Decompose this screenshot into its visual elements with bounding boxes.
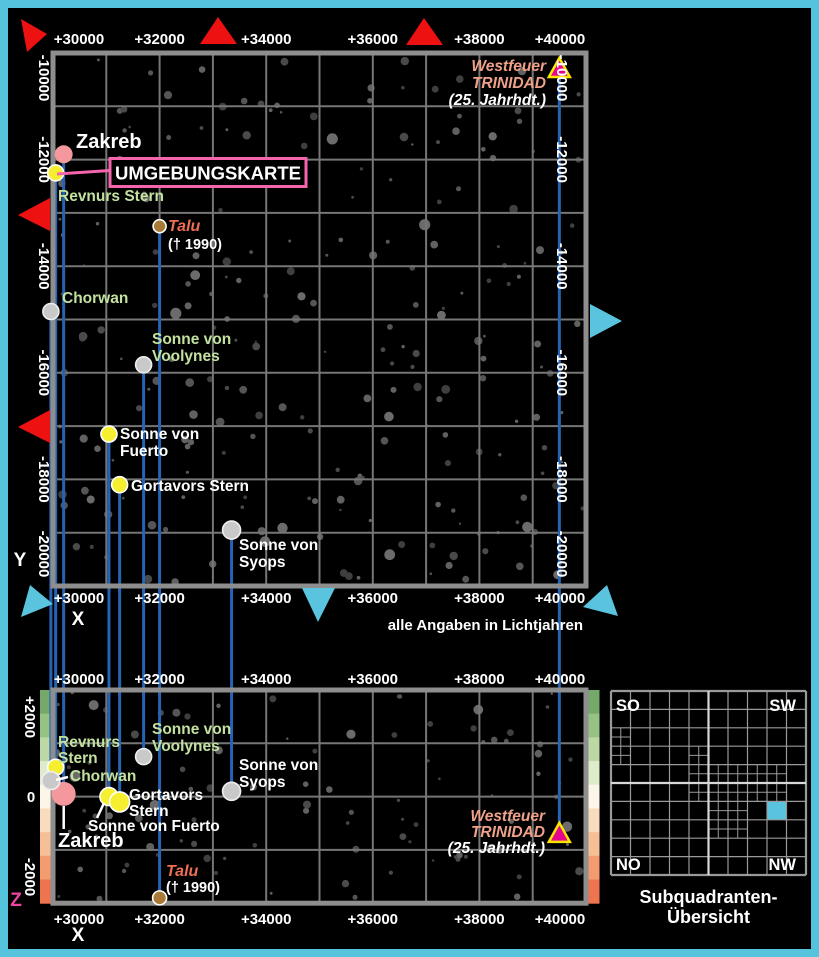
y-tick-left: -14000 [35,243,52,290]
x-tick-top-map-bottom: +32000 [134,590,184,607]
background-star-dot [536,246,544,254]
star-chorwan-bottom-label: Chorwan [70,768,136,785]
background-star-dot [297,292,305,300]
background-star-dot [163,527,168,532]
background-star-dot [166,135,171,140]
y-tick-right: -16000 [553,349,570,396]
background-star-dot [381,347,386,352]
background-star-dot [125,863,130,868]
background-star-dot [364,395,372,403]
background-star-dot [436,396,442,402]
background-star-dot [326,786,333,793]
background-star-dot [480,375,486,381]
star-sonne-von-syops-top-label: Sonne von [239,537,318,554]
background-star-dot [349,810,354,815]
background-star-dot [427,721,433,727]
background-star-dot [59,218,62,221]
background-star-dot [391,387,397,393]
background-star-dot [542,445,547,450]
background-star-dot [357,576,361,580]
x-tick-top: +38000 [454,31,504,48]
background-star-dot [384,412,394,422]
map-title: UMGEBUNGSKARTE [115,163,301,184]
background-star-dot [413,302,419,308]
background-star-dot [432,86,439,93]
background-star-dot [189,410,198,419]
star-westfeuer-trinidad-bottom-label: TRINIDAD [471,824,545,841]
star-gortavors-stern-bottom-marker [110,792,130,812]
background-star-dot [481,147,486,152]
background-star-dot [136,405,142,411]
background-star-dot [73,543,80,550]
background-star-dot [243,495,247,499]
background-star-dot [451,508,455,512]
background-star-dot [77,867,83,873]
star-revnurs-stern-bottom-label: Revnurs [58,734,120,751]
background-star-dot [346,730,355,739]
background-star-dot [81,487,89,495]
background-star-dot [401,57,409,65]
background-star-dot [381,437,389,445]
x-tick-top-map-bottom: +34000 [241,590,291,607]
background-star-dot [441,385,450,394]
background-star-dot [80,435,88,443]
star-sonne-von-fuerto-top-label: Fuerto [120,443,168,460]
x-tick-bottom-map-top: +36000 [348,671,398,688]
background-star-dot [517,119,522,124]
background-star-dot [79,332,88,341]
background-star-dot [258,527,266,535]
background-star-dot [184,713,190,719]
background-star-dot [191,841,197,847]
background-star-dot [354,477,363,486]
background-star-dot [384,549,395,560]
background-star-dot [517,874,522,879]
x-tick-bottom-map-top: +38000 [454,671,504,688]
x-tick-bottom-map-bottom: +32000 [134,911,184,928]
background-star-dot [546,705,550,709]
background-star-dot [491,737,498,744]
background-star-dot [443,432,449,438]
star-map-page: UMGEBUNGSKARTEZakrebZakrebRevnurs SternR… [0,0,819,957]
background-star-dot [452,127,460,135]
background-star-dot [342,880,349,887]
background-star-dot [536,772,540,776]
background-star-dot [180,767,186,773]
background-star-dot [533,414,540,421]
y-tick-right: -20000 [553,531,570,578]
background-star-dot [481,356,487,362]
star-talu-top-label: Talu [168,218,201,235]
background-star-dot [147,388,150,391]
background-star-dot [303,781,309,787]
background-star-dot [507,729,514,736]
star-sonne-von-syops-bottom-marker [223,782,241,800]
z-tick-left: 0 [27,789,35,806]
star-sonne-von-fuerto-bottom-label: Sonne von Fuerto [88,818,220,835]
x-tick-bottom-map-top: +32000 [134,671,184,688]
background-star-dot [303,808,309,814]
background-star-dot [172,709,180,717]
y-tick-right: -12000 [553,136,570,183]
y-tick-right: -10000 [553,55,570,102]
overview-corner-no: NO [616,856,641,874]
x-tick-bottom-map-top: +40000 [535,671,585,688]
background-star-dot [398,541,405,548]
background-star-dot [148,521,157,530]
y-tick-right: -14000 [553,243,570,290]
background-star-dot [222,451,226,455]
background-star-dot [94,445,101,452]
background-star-dot [570,223,575,228]
background-star-dot [353,895,358,900]
x-tick-bottom-map-bottom: +38000 [454,911,504,928]
background-star-dot [516,563,524,571]
background-star-dot [432,859,435,862]
background-star-dot [474,337,482,345]
star-sonne-von-fuerto-top-marker [101,426,117,442]
background-star-dot [401,818,404,821]
background-star-dot [534,341,541,348]
x-tick-bottom-map-bottom: +34000 [241,911,291,928]
background-star-dot [438,778,441,781]
background-star-dot [97,59,100,62]
star-chorwan-top-marker [43,304,59,320]
x-tick-top: +32000 [134,31,184,48]
overview-current-sector-cell [767,801,787,819]
background-star-dot [307,497,311,501]
z-axis-letter: Z [10,890,22,911]
background-star-dot [351,196,354,199]
z-tick-left: +2000 [21,696,38,738]
background-star-dot [249,250,253,254]
background-star-dot [312,498,318,504]
background-star-dot [185,378,194,387]
star-westfeuer-trinidad-top-label: Westfeuer [471,58,547,75]
background-star-dot [131,731,139,739]
background-star-dot [517,275,521,279]
background-star-dot [128,126,131,129]
background-star-dot [540,366,543,369]
background-star-dot [337,496,345,504]
star-sonne-von-voolynes-bottom-label: Voolynes [152,738,220,755]
background-star-dot [241,505,245,509]
background-star-dot [392,732,398,738]
overview-caption-line1: Subquadranten- [640,887,778,907]
star-chorwan-top-label: Chorwan [62,290,128,307]
y-tick-left: -10000 [35,55,52,102]
background-star-dot [148,70,153,75]
star-sonne-von-voolynes-bottom-label: Sonne von [152,721,231,738]
star-revnurs-stern-bottom-label: Stern [58,750,98,767]
star-sonne-von-syops-bottom-label: Syops [239,774,286,791]
background-star-dot [324,351,326,353]
background-star-dot [339,238,344,243]
background-star-dot [456,75,464,83]
background-star-dot [410,365,414,369]
background-star-dot [401,86,405,90]
background-star-dot [390,361,394,365]
background-star-dot [574,321,580,327]
background-star-dot [345,572,353,580]
background-star-dot [200,126,204,130]
background-star-dot [436,140,440,144]
x-tick-top-map-bottom: +30000 [54,590,104,607]
background-star-dot [445,460,451,466]
x-tick-bottom-map-top: +30000 [54,671,104,688]
background-star-dot [277,523,287,533]
background-star-dot [389,178,392,181]
y-tick-left: -18000 [35,456,52,503]
star-sonne-von-syops-bottom-label: Sonne von [239,757,318,774]
background-star-dot [401,345,404,348]
units-note: alle Angaben in Lichtjahren [388,617,583,634]
background-star-dot [521,494,528,501]
star-revnurs-stern-top-label: Revnurs Stern [58,188,164,205]
background-star-dot [96,222,99,225]
background-star-dot [398,694,402,698]
background-star-dot [185,302,192,309]
background-star-dot [288,240,291,243]
background-star-dot [112,459,115,462]
y-axis-letter: Y [14,550,27,571]
star-gortavors-stern-top-marker [112,477,128,493]
background-star-dot [537,741,543,747]
background-star-dot [461,292,464,295]
star-zakreb-top-marker [55,145,73,163]
background-star-dot [400,133,409,142]
background-star-dot [369,519,372,522]
background-star-dot [122,869,126,873]
overview-caption-line2: Übersicht [667,907,750,927]
background-star-dot [152,303,157,308]
background-star-dot [413,383,421,391]
star-westfeuer-trinidad-bottom-label: (25. Jahrhdt.) [448,840,545,857]
background-star-dot [89,700,99,710]
x-tick-bottom-map-bottom: +36000 [348,911,398,928]
y-tick-right: -18000 [553,456,570,503]
background-star-dot [462,576,469,583]
background-star-dot [524,262,527,265]
background-star-dot [437,200,442,205]
x-tick-top: +34000 [241,31,291,48]
background-star-dot [216,418,225,427]
background-star-dot [389,871,393,875]
background-star-dot [87,496,95,504]
background-star-dot [566,843,569,846]
background-star-dot [487,279,492,284]
background-star-dot [483,335,486,338]
background-star-dot [446,562,453,569]
background-star-dot [514,894,520,900]
background-star-dot [204,855,211,862]
background-star-dot [269,695,276,702]
star-map-scene: UMGEBUNGSKARTEZakrebZakrebRevnurs SternR… [0,0,819,957]
background-star-dot [419,219,430,230]
background-star-dot [170,308,181,319]
background-star-dot [413,350,420,357]
overview-corner-nw: NW [769,856,797,874]
background-star-dot [199,66,206,73]
background-star-dot [225,276,228,279]
background-star-dot [541,472,545,476]
star-gortavors-stern-bottom-label: Stern [129,803,169,820]
background-star-dot [223,257,231,265]
background-star-dot [57,895,60,898]
background-star-dot [339,509,342,512]
background-star-dot [235,339,238,342]
background-star-dot [269,108,273,112]
background-star-dot [456,186,461,191]
x-tick-top: +40000 [535,31,585,48]
star-westfeuer-trinidad-top-label: (25. Jahrhdt.) [449,92,546,109]
star-talu-bottom-label: († 1990) [166,880,220,896]
background-star-dot [568,757,572,761]
background-star-dot [310,300,317,307]
background-star-dot [190,270,200,280]
background-star-dot [515,420,518,423]
background-star-dot [397,799,400,802]
background-star-dot [575,867,583,875]
star-talu-top-label: († 1990) [168,237,222,253]
background-star-dot [408,840,411,843]
x-tick-bottom-map-bottom: +40000 [535,911,585,928]
y-tick-left: -12000 [35,136,52,183]
background-star-dot [185,281,191,287]
background-star-dot [435,502,441,508]
star-westfeuer-trinidad-top-label: TRINIDAD [472,75,546,92]
background-star-dot [270,892,273,895]
background-star-dot [387,324,393,330]
x-tick-top: +36000 [348,31,398,48]
star-sonne-von-fuerto-top-label: Sonne von [120,426,199,443]
star-talu-top-marker [153,220,166,233]
background-star-dot [386,240,390,244]
background-star-dot [253,843,258,848]
background-star-dot [459,523,461,525]
z-tick-left: -2000 [21,858,38,896]
y-tick-left: -16000 [35,349,52,396]
background-star-dot [186,471,189,474]
star-sonne-von-voolynes-top-label: Voolynes [152,348,220,365]
background-star-dot [82,809,86,813]
background-star-dot [241,98,248,105]
star-talu-bottom-label: Talu [166,863,199,880]
background-star-dot [346,821,350,825]
background-star-dot [59,440,62,443]
overview-corner-so: SO [616,697,640,715]
background-star-dot [470,725,476,731]
background-star-dot [90,545,94,549]
x-axis-letter-top-map: X [72,609,85,630]
star-sonne-von-voolynes-top-marker [136,357,152,373]
background-star-dot [280,111,283,114]
overview-corner-sw: SW [769,697,796,715]
background-star-dot [120,358,123,361]
background-star-dot [214,871,218,875]
background-star-dot [226,128,229,131]
background-star-dot [360,167,363,170]
background-star-dot [522,522,532,532]
x-tick-top-map-bottom: +36000 [348,590,398,607]
background-star-dot [193,252,200,259]
background-star-dot [400,833,407,840]
x-tick-top-map-bottom: +38000 [454,590,504,607]
background-star-dot [497,245,500,248]
background-star-dot [429,543,435,549]
x-axis-letter-bottom-map: X [72,925,85,946]
background-star-dot [535,750,543,758]
background-star-dot [507,282,511,286]
background-star-dot [551,693,553,695]
background-star-dot [301,143,308,150]
background-star-dot [430,573,433,576]
background-star-dot [430,241,438,249]
background-star-dot [287,267,295,275]
background-star-dot [437,311,446,320]
background-star-dot [482,548,488,554]
x-tick-bottom-map-top: +34000 [241,671,291,688]
background-star-dot [255,412,263,420]
background-star-dot [216,704,220,708]
background-star-dot [300,415,304,419]
background-star-dot [218,208,222,212]
background-star-dot [250,434,255,439]
background-star-dot [325,254,328,257]
background-star-dot [489,132,497,140]
background-star-dot [185,444,191,450]
background-star-dot [457,114,462,119]
star-gortavors-stern-bottom-label: Gortavors [129,787,203,804]
background-star-dot [122,497,125,500]
background-star-dot [164,91,172,99]
background-star-dot [327,133,338,144]
background-star-dot [180,839,183,842]
star-sonne-von-syops-top-label: Syops [239,554,286,571]
background-star-dot [414,822,419,827]
background-star-dot [498,453,501,456]
y-tick-left: -20000 [35,531,52,578]
background-star-dot [181,495,185,499]
background-star-dot [312,749,317,754]
x-tick-top: +30000 [54,31,104,48]
background-star-dot [336,468,340,472]
background-star-dot [442,307,445,310]
background-star-dot [310,113,318,121]
background-star-dot [308,428,313,433]
background-star-dot [577,92,581,96]
background-star-dot [153,249,159,255]
background-star-dot [281,58,289,66]
background-star-dot [286,738,288,740]
star-zakreb-top-label: Zakreb [76,131,142,153]
star-westfeuer-trinidad-bottom-label: Westfeuer [470,808,546,825]
background-star-dot [252,343,260,351]
background-star-dot [279,403,287,411]
star-talu-bottom-marker [153,891,167,905]
star-sonne-von-voolynes-bottom-marker [136,749,152,765]
background-star-dot [239,386,247,394]
background-star-dot [98,326,105,333]
star-gortavors-stern-top-label: Gortavors Stern [131,478,249,495]
background-star-dot [516,520,520,524]
background-star-dot [236,278,241,283]
x-tick-top-map-bottom: +40000 [535,590,585,607]
background-star-dot [450,552,458,560]
star-sonne-von-voolynes-top-label: Sonne von [152,331,231,348]
background-star-dot [411,143,413,145]
background-star-dot [223,857,226,860]
